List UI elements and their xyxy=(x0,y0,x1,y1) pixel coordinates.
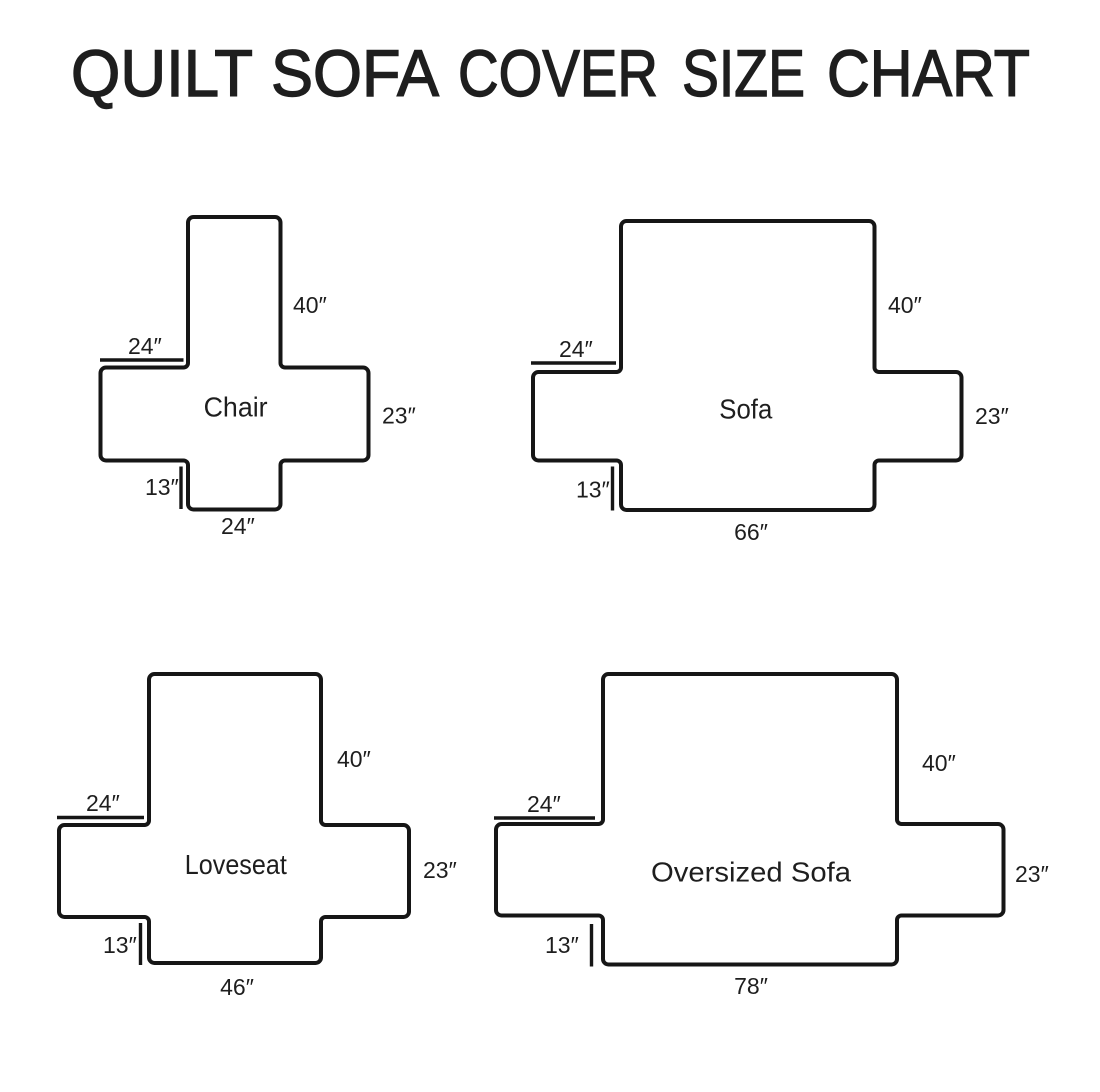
svg-text:COVER: COVER xyxy=(458,36,658,110)
svg-text:Chair: Chair xyxy=(204,392,268,423)
svg-text:46″: 46″ xyxy=(220,974,254,1000)
svg-text:24″: 24″ xyxy=(86,790,120,816)
svg-text:23″: 23″ xyxy=(975,403,1009,429)
svg-text:CHART: CHART xyxy=(827,36,1030,110)
svg-text:40″: 40″ xyxy=(922,750,956,776)
svg-text:13″: 13″ xyxy=(545,932,579,958)
svg-text:40″: 40″ xyxy=(337,746,371,772)
svg-text:13″: 13″ xyxy=(145,474,179,500)
svg-text:Sofa: Sofa xyxy=(719,394,772,425)
svg-text:66″: 66″ xyxy=(734,519,768,545)
svg-text:24″: 24″ xyxy=(527,791,561,817)
svg-text:24″: 24″ xyxy=(559,336,593,362)
svg-text:SIZE: SIZE xyxy=(682,36,805,110)
svg-text:Oversized Sofa: Oversized Sofa xyxy=(651,857,851,888)
svg-text:23″: 23″ xyxy=(423,857,457,883)
svg-text:Loveseat: Loveseat xyxy=(185,849,287,880)
svg-text:13″: 13″ xyxy=(103,932,137,958)
svg-text:24″: 24″ xyxy=(221,513,255,539)
svg-text:13″: 13″ xyxy=(576,477,610,503)
svg-text:23″: 23″ xyxy=(1015,861,1049,887)
svg-text:40″: 40″ xyxy=(888,292,922,318)
svg-text:78″: 78″ xyxy=(734,973,768,999)
svg-text:23″: 23″ xyxy=(382,403,416,429)
svg-text:24″: 24″ xyxy=(128,333,162,359)
svg-text:QUILT: QUILT xyxy=(71,36,253,110)
svg-text:SOFA: SOFA xyxy=(271,36,439,110)
svg-text:40″: 40″ xyxy=(293,292,327,318)
